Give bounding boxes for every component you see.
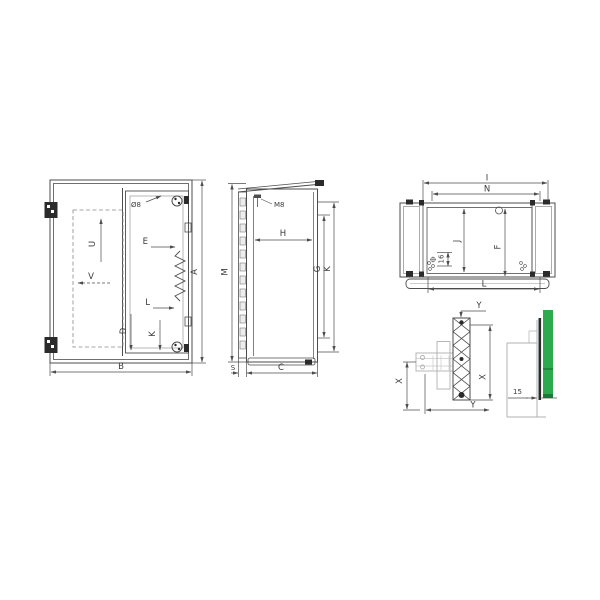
bracket-vertical-toothed (453, 318, 470, 400)
dim-16-label: 16 (438, 254, 446, 263)
dim-y1-label: Y (475, 301, 482, 311)
stud-cluster-right (520, 262, 527, 271)
door-panel (126, 191, 189, 353)
corner-hinge-details (406, 200, 550, 277)
roof-hinge-cap (315, 180, 324, 186)
door-spring (175, 251, 185, 301)
dim-dia-label: Ø8 (131, 201, 141, 209)
dim-s-label: S (231, 364, 236, 372)
door-hinge-knuckle-top (172, 196, 189, 206)
dim-d-label: D (119, 327, 129, 334)
dim-x2-label: X (395, 378, 405, 384)
dim-a-label: A (190, 269, 200, 275)
hinge-block-top (45, 202, 58, 218)
dim-x1-label: X (479, 374, 489, 380)
door-gasket (130, 196, 183, 348)
mounting-plate-dashed (73, 210, 123, 347)
m8-stud (254, 195, 272, 208)
dim-j-label: J (453, 240, 463, 244)
top-view: I N J F 16 L (400, 174, 555, 294)
dim-i-label: I (486, 174, 489, 184)
dim-c-label: C (278, 363, 284, 373)
dim-h-label: H (280, 229, 286, 239)
side-body (247, 189, 318, 362)
door-latch-upper (185, 223, 191, 232)
door-latch-lower (185, 317, 191, 326)
hinge-teeth (240, 198, 246, 349)
enclosure-outer-frame (50, 180, 192, 363)
dim-v-label: V (88, 272, 94, 282)
side-view: M8 H M G K S C (221, 180, 340, 377)
drawing-canvas: Ø8 U V E L D K A B (0, 0, 600, 600)
bracket-horizontal-ghost (416, 342, 456, 390)
dim-u-label: U (88, 241, 98, 247)
dim-g-label: G (313, 266, 323, 273)
front-view: Ø8 U V E L D K A B (45, 180, 207, 376)
back-panel-line (539, 318, 542, 400)
dim-e-label: E (143, 237, 148, 247)
dim-l-label: L (145, 298, 150, 308)
m8-stud-label: M8 (274, 201, 285, 209)
dim-15-label: 15 (513, 388, 522, 396)
knockout-circle (496, 207, 503, 214)
bracket-detail: Y X Y X (395, 301, 493, 414)
wall-bar (543, 310, 553, 398)
dim-l2-label: L (482, 280, 487, 290)
dia-leader-line (146, 196, 161, 202)
dim-k2-label: K (323, 266, 333, 272)
dim-f-label: F (494, 244, 504, 249)
door-hinge-knuckle-bottom (172, 342, 189, 352)
dim-k-label: K (148, 331, 158, 337)
dim-m-label: M (221, 268, 231, 275)
dim-n-label: N (484, 185, 490, 195)
technical-drawing-page: Ø8 U V E L D K A B (0, 0, 600, 600)
wall-mount-detail: 15 (507, 310, 557, 417)
stud-cluster-left (428, 262, 435, 271)
dim-b-label: B (118, 362, 124, 372)
hinge-block-bottom (45, 337, 58, 353)
dim-y2-label: Y (469, 401, 476, 411)
